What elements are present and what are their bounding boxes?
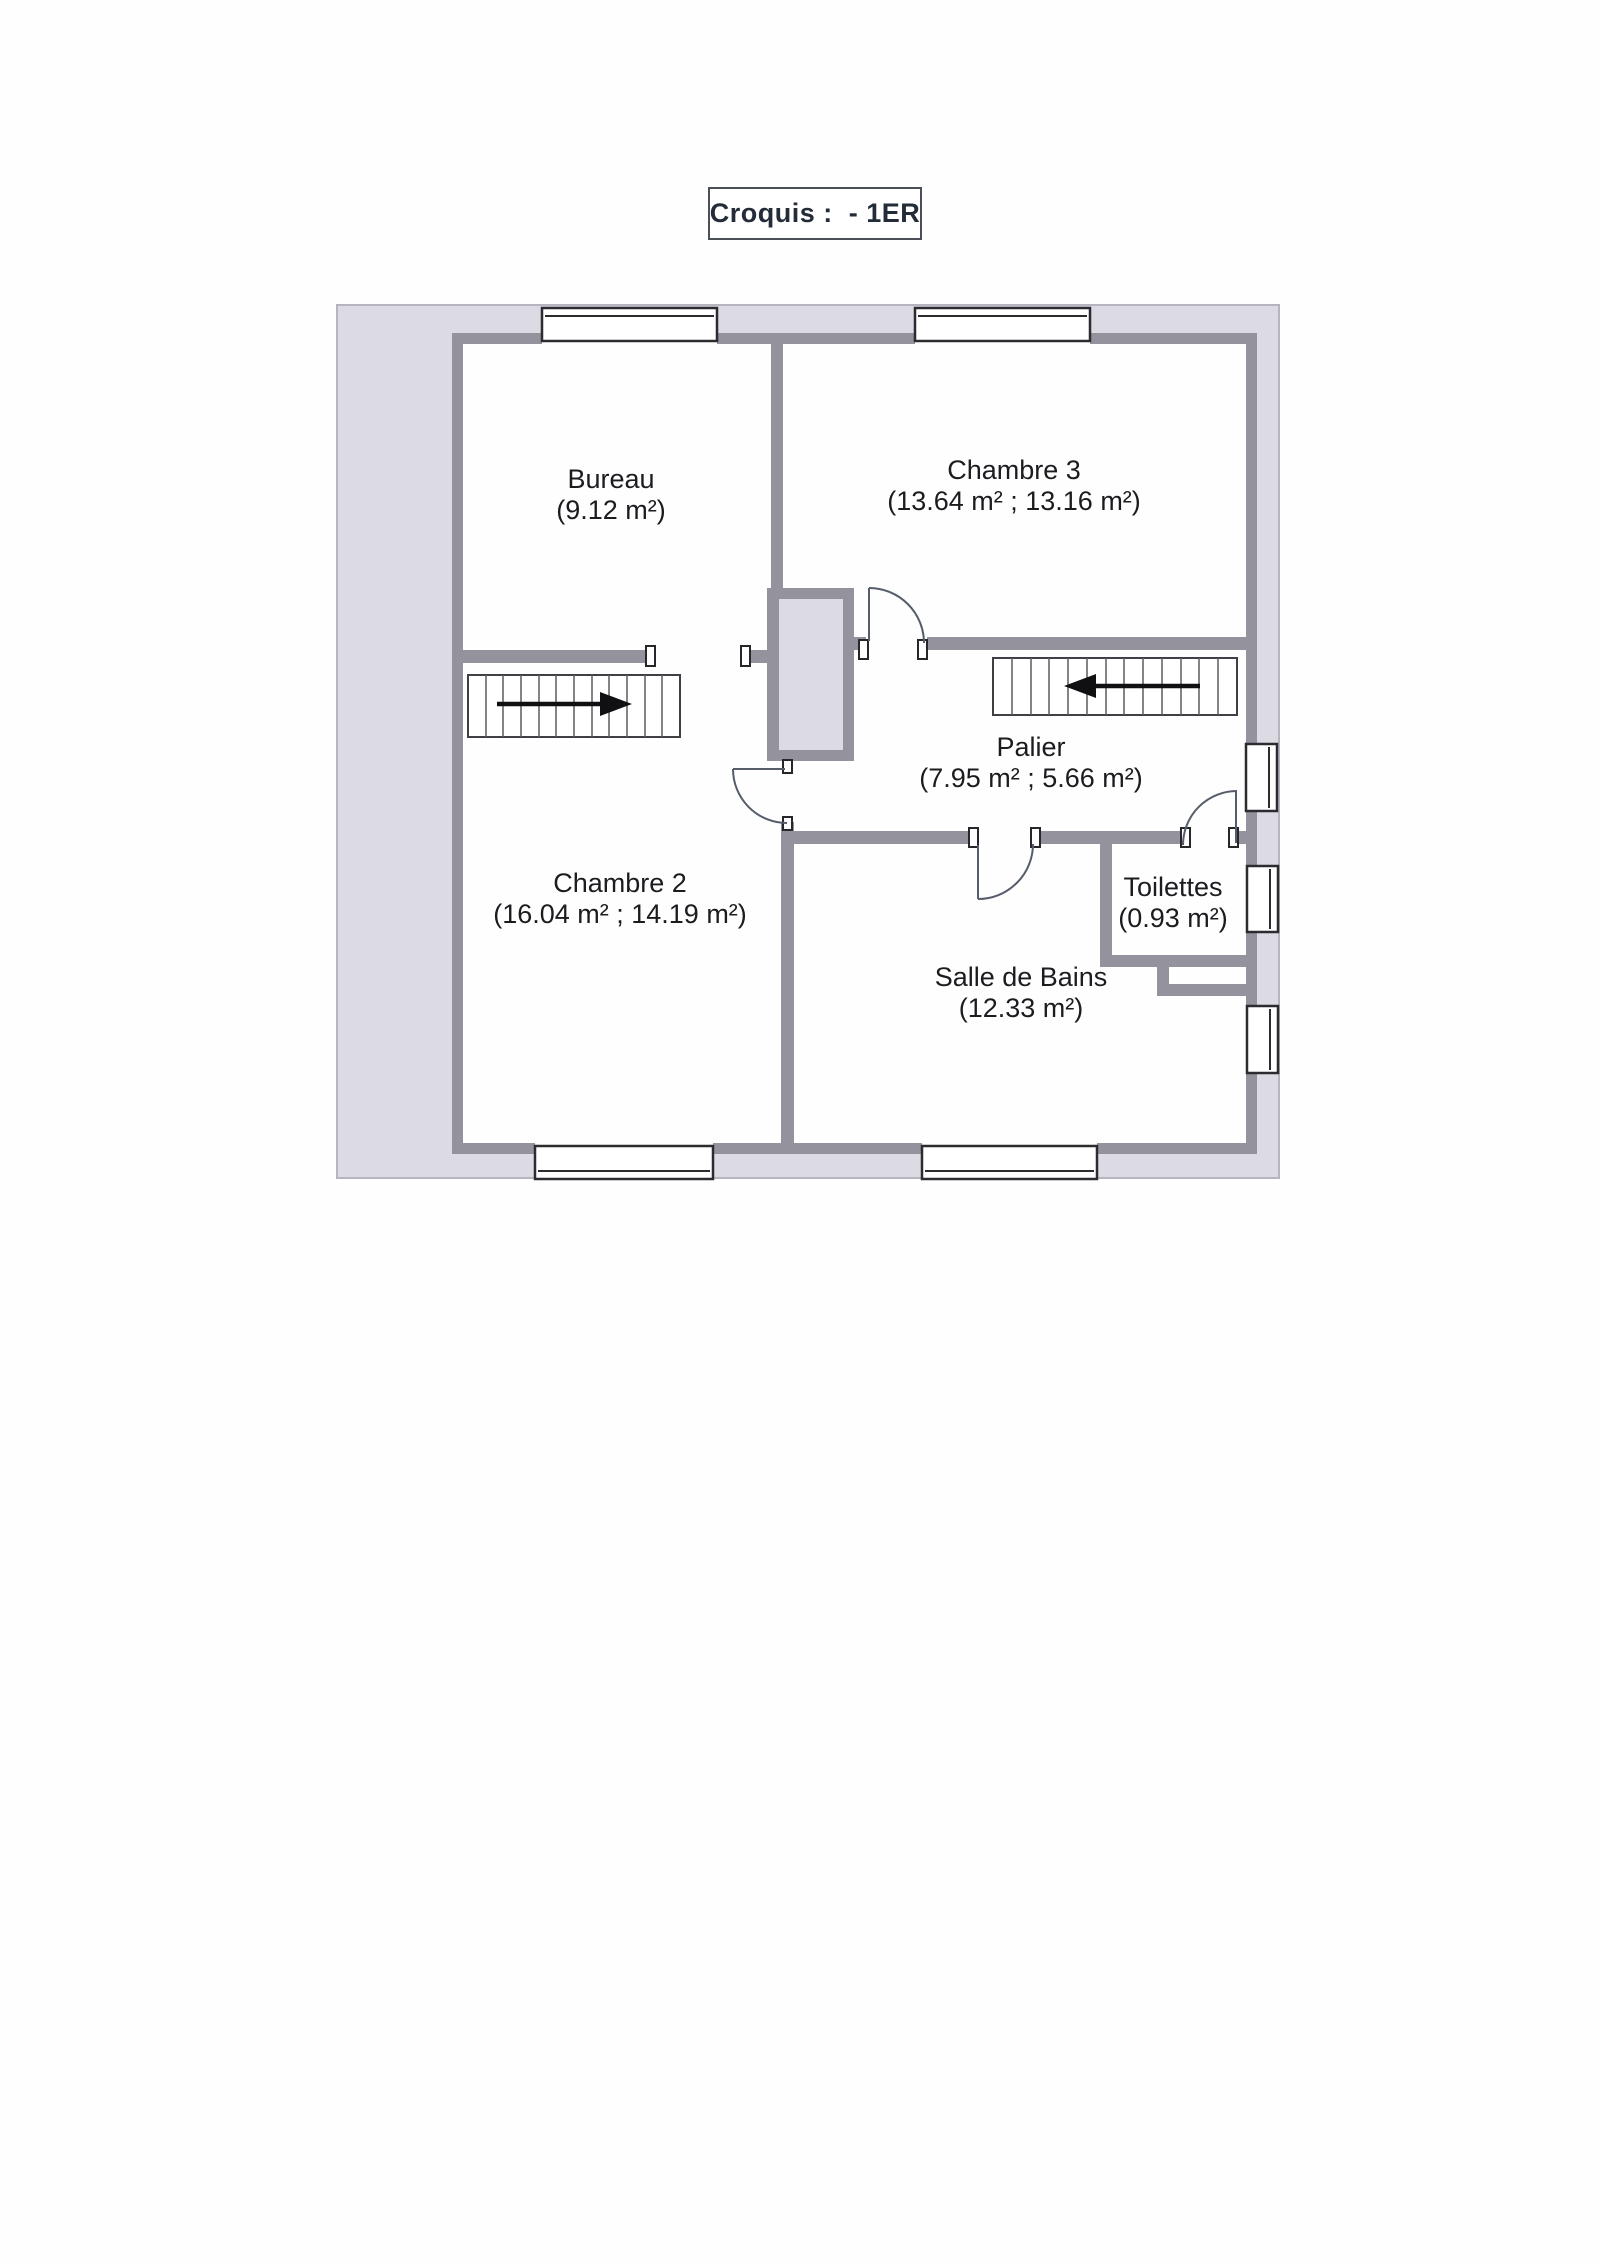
room-area: (16.04 m² ; 14.19 m²): [493, 899, 747, 930]
window-chambre3-north: [915, 308, 1090, 341]
window-sdb-south: [922, 1146, 1097, 1179]
wall-top-segment: [717, 333, 915, 344]
scanned-floor-plan-page: Croquis : - 1ER: [0, 0, 1600, 2263]
wall-palier-south: [794, 831, 972, 844]
room-area: (12.33 m²): [935, 993, 1108, 1024]
wall-bottom-segment: [713, 1143, 922, 1154]
door-swing-chambre2: [733, 769, 787, 823]
jamb-chambre2-door: [783, 760, 792, 773]
room-name: Salle de Bains: [935, 962, 1108, 993]
jamb-sdb-door: [969, 828, 978, 847]
wall-right-segment: [1246, 932, 1257, 1006]
door-swing-sdb: [978, 844, 1033, 899]
room-label-salle-de-bains: Salle de Bains (12.33 m²): [935, 962, 1108, 1024]
wall-chambre3-south: [927, 637, 1246, 650]
jamb-chambre3-door: [918, 640, 927, 659]
window-bureau-north: [542, 308, 717, 341]
room-area: (0.93 m²): [1118, 903, 1228, 934]
room-label-bureau: Bureau (9.12 m²): [556, 464, 666, 526]
window-palier-east: [1246, 744, 1277, 811]
room-name: Toilettes: [1118, 872, 1228, 903]
wall-chambre2-sdb-divider: [781, 822, 794, 1143]
wall-right-segment: [1246, 333, 1257, 744]
window-sdb-east: [1247, 1006, 1278, 1073]
room-label-chambre3: Chambre 3 (13.64 m² ; 13.16 m²): [887, 455, 1141, 517]
band-left: [337, 305, 452, 1178]
wall-bureau-east: [771, 344, 783, 590]
room-area: (7.95 m² ; 5.66 m²): [919, 763, 1143, 794]
wall-top-segment: [452, 333, 542, 344]
wall-bottom-segment: [1097, 1143, 1257, 1154]
wall-palier-south: [1239, 831, 1248, 844]
room-label-palier: Palier (7.95 m² ; 5.66 m²): [919, 732, 1143, 794]
room-name: Chambre 3: [887, 455, 1141, 486]
wall-left: [452, 333, 463, 1154]
room-area: (9.12 m²): [556, 495, 666, 526]
wall-toilettes-step-south: [1157, 984, 1246, 996]
floor-plan-drawing: [0, 0, 1600, 2263]
window-toilettes-east: [1247, 866, 1278, 932]
wall-bureau-south: [463, 650, 647, 663]
windows: [535, 308, 1278, 1179]
wall-palier-south: [1041, 831, 1184, 844]
wall-toilettes-south: [1100, 955, 1246, 967]
jamb-bureau-door: [646, 646, 655, 666]
jamb-bureau-door: [741, 646, 750, 666]
room-name: Palier: [919, 732, 1143, 763]
band-bottom: [337, 1154, 1279, 1178]
wall-top-segment: [1090, 333, 1257, 344]
door-swing-chambre3: [869, 588, 924, 643]
window-chambre2-south: [535, 1146, 713, 1179]
jamb-chambre3-door: [859, 640, 868, 659]
staircase-right: [993, 658, 1237, 715]
band-top: [337, 305, 1279, 333]
wall-right-segment: [1246, 1073, 1257, 1154]
room-label-chambre2: Chambre 2 (16.04 m² ; 14.19 m²): [493, 868, 747, 930]
duct-shaft-interior: [779, 599, 843, 750]
room-label-toilettes: Toilettes (0.93 m²): [1118, 872, 1228, 934]
room-area: (13.64 m² ; 13.16 m²): [887, 486, 1141, 517]
room-name: Chambre 2: [493, 868, 747, 899]
wall-toilettes-west: [1100, 844, 1112, 967]
room-name: Bureau: [556, 464, 666, 495]
staircase-left: [468, 675, 680, 737]
wall-bottom-segment: [452, 1143, 535, 1154]
